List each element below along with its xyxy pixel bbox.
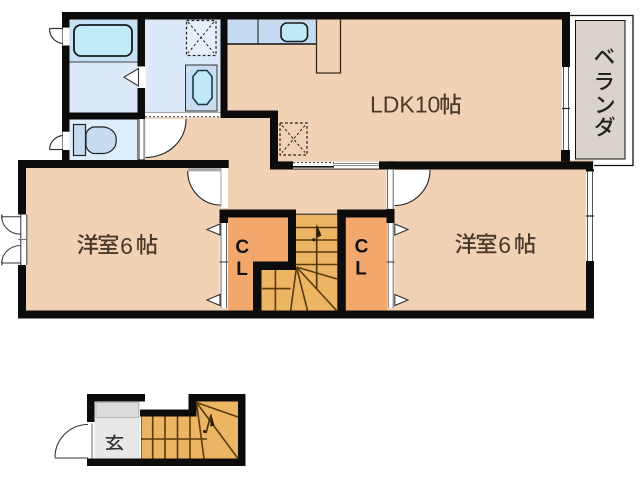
svg-text:6: 6 — [120, 233, 133, 259]
svg-text:C: C — [235, 237, 249, 258]
svg-text:6: 6 — [498, 232, 511, 258]
svg-text:L: L — [355, 259, 367, 280]
svg-text:LDK10: LDK10 — [370, 92, 440, 118]
svg-text:L: L — [236, 259, 248, 280]
svg-text:C: C — [355, 237, 369, 258]
